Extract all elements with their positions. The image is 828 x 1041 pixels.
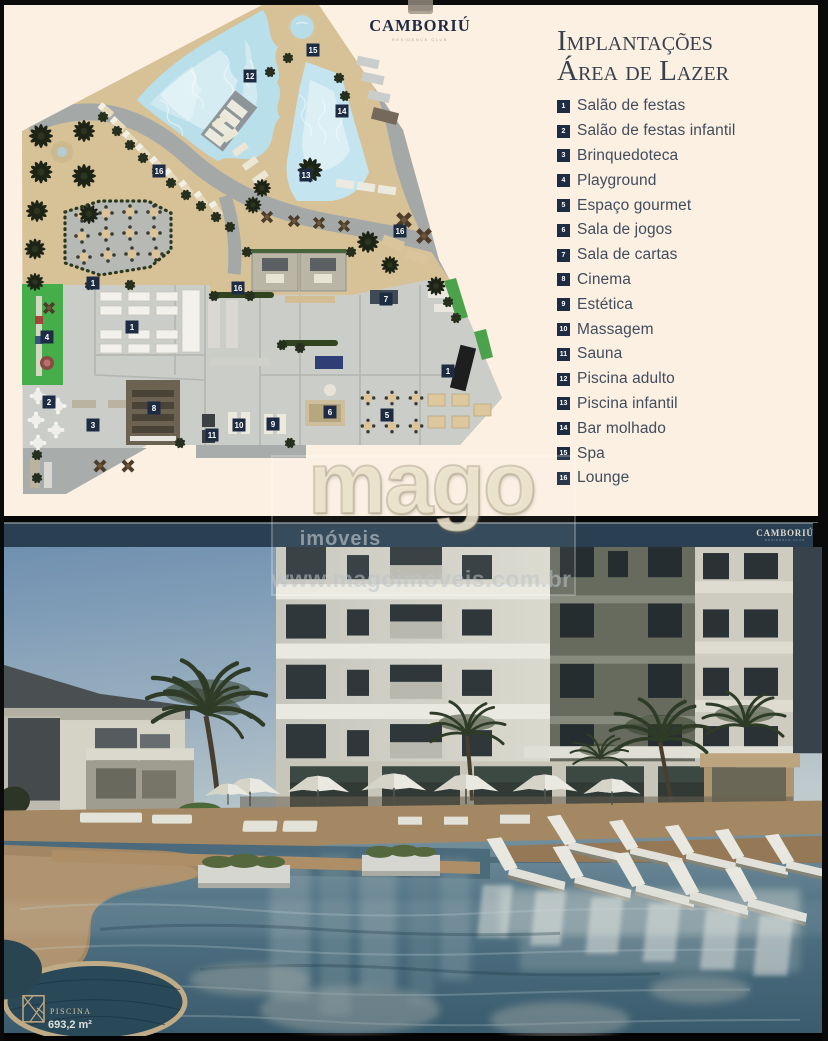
svg-text:11: 11: [208, 431, 217, 440]
svg-text:3: 3: [91, 421, 96, 430]
svg-text:6: 6: [328, 408, 333, 417]
svg-text:16: 16: [396, 227, 405, 236]
svg-text:1: 1: [446, 367, 451, 376]
svg-text:15: 15: [309, 46, 318, 55]
svg-text:9: 9: [271, 420, 276, 429]
svg-text:8: 8: [152, 404, 157, 413]
svg-text:1: 1: [130, 323, 135, 332]
svg-text:16: 16: [155, 167, 164, 176]
svg-text:4: 4: [45, 333, 50, 342]
svg-text:5: 5: [385, 411, 390, 420]
svg-text:14: 14: [338, 107, 347, 116]
svg-text:10: 10: [235, 421, 244, 430]
svg-text:7: 7: [384, 295, 389, 304]
svg-text:13: 13: [302, 171, 311, 180]
svg-text:12: 12: [246, 72, 255, 81]
svg-text:16: 16: [234, 284, 243, 293]
svg-text:2: 2: [47, 398, 52, 407]
svg-text:1: 1: [91, 279, 96, 288]
